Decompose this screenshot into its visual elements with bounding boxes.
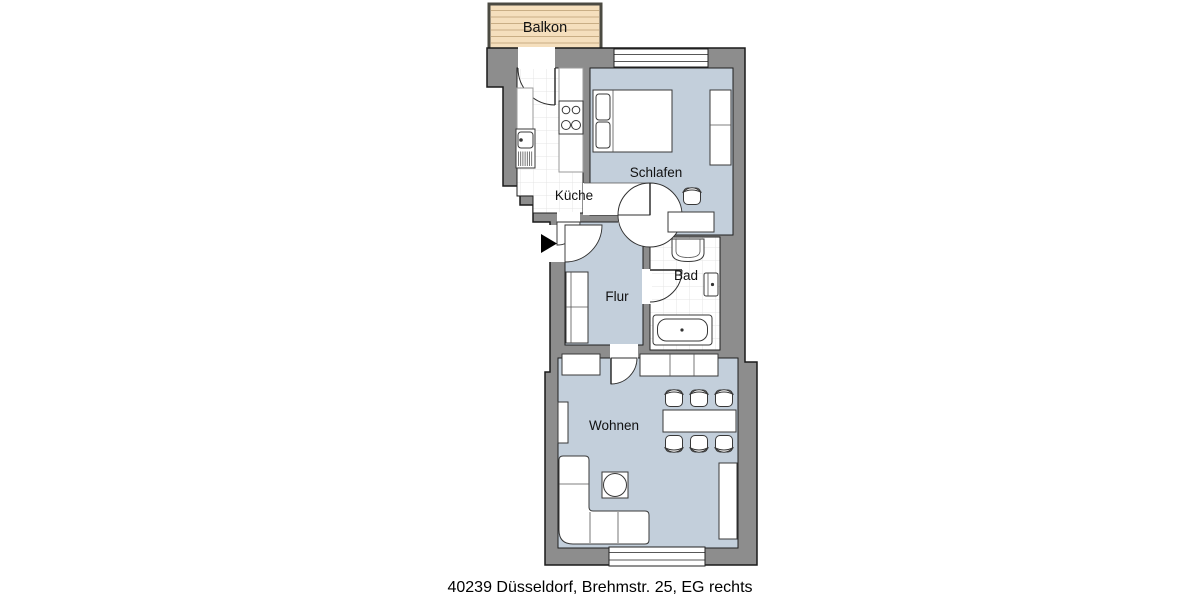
coffee-table	[602, 472, 628, 498]
bath-door-opening	[642, 269, 652, 304]
room-label-flur: Flur	[605, 289, 629, 304]
living-window	[609, 547, 705, 566]
dining-chair	[665, 436, 684, 453]
hall-furniture	[566, 272, 588, 343]
dining-chair	[715, 436, 734, 453]
floor-plan-canvas: Balkon	[0, 0, 1200, 600]
balcony-door-opening	[518, 47, 555, 69]
washbasin	[672, 239, 704, 262]
room-label-bad: Bad	[674, 268, 698, 283]
floor-plan-svg: Balkon	[0, 0, 1200, 600]
dining-table	[663, 410, 736, 432]
tv-shelf	[719, 463, 737, 539]
dining-chair	[665, 390, 684, 407]
desk	[668, 212, 714, 232]
dining-chair	[715, 390, 734, 407]
sideboard-left	[562, 354, 600, 375]
stove	[559, 101, 583, 134]
pillow	[596, 122, 610, 148]
radiator	[558, 402, 568, 443]
room-label-wohnen: Wohnen	[589, 418, 639, 433]
plan-caption: 40239 Düsseldorf, Brehmstr. 25, EG recht…	[447, 579, 752, 596]
dining-chair	[690, 436, 709, 453]
toilet	[704, 273, 718, 296]
hall-closet	[566, 272, 588, 343]
bathtub	[653, 315, 712, 345]
pillow	[596, 94, 610, 120]
wardrobe	[710, 90, 731, 165]
room-balkon: Balkon	[489, 4, 601, 49]
room-label-schlafen: Schlafen	[630, 165, 683, 180]
living-door-opening	[610, 344, 638, 359]
bedroom-window	[614, 49, 708, 67]
room-label-kueche: Küche	[555, 188, 593, 203]
dining-chair	[690, 390, 709, 407]
bed	[593, 90, 672, 152]
room-label-balkon: Balkon	[523, 20, 567, 36]
kitchen-sink	[516, 129, 535, 168]
desk-chair	[683, 188, 702, 205]
sideboard-right	[640, 354, 718, 376]
